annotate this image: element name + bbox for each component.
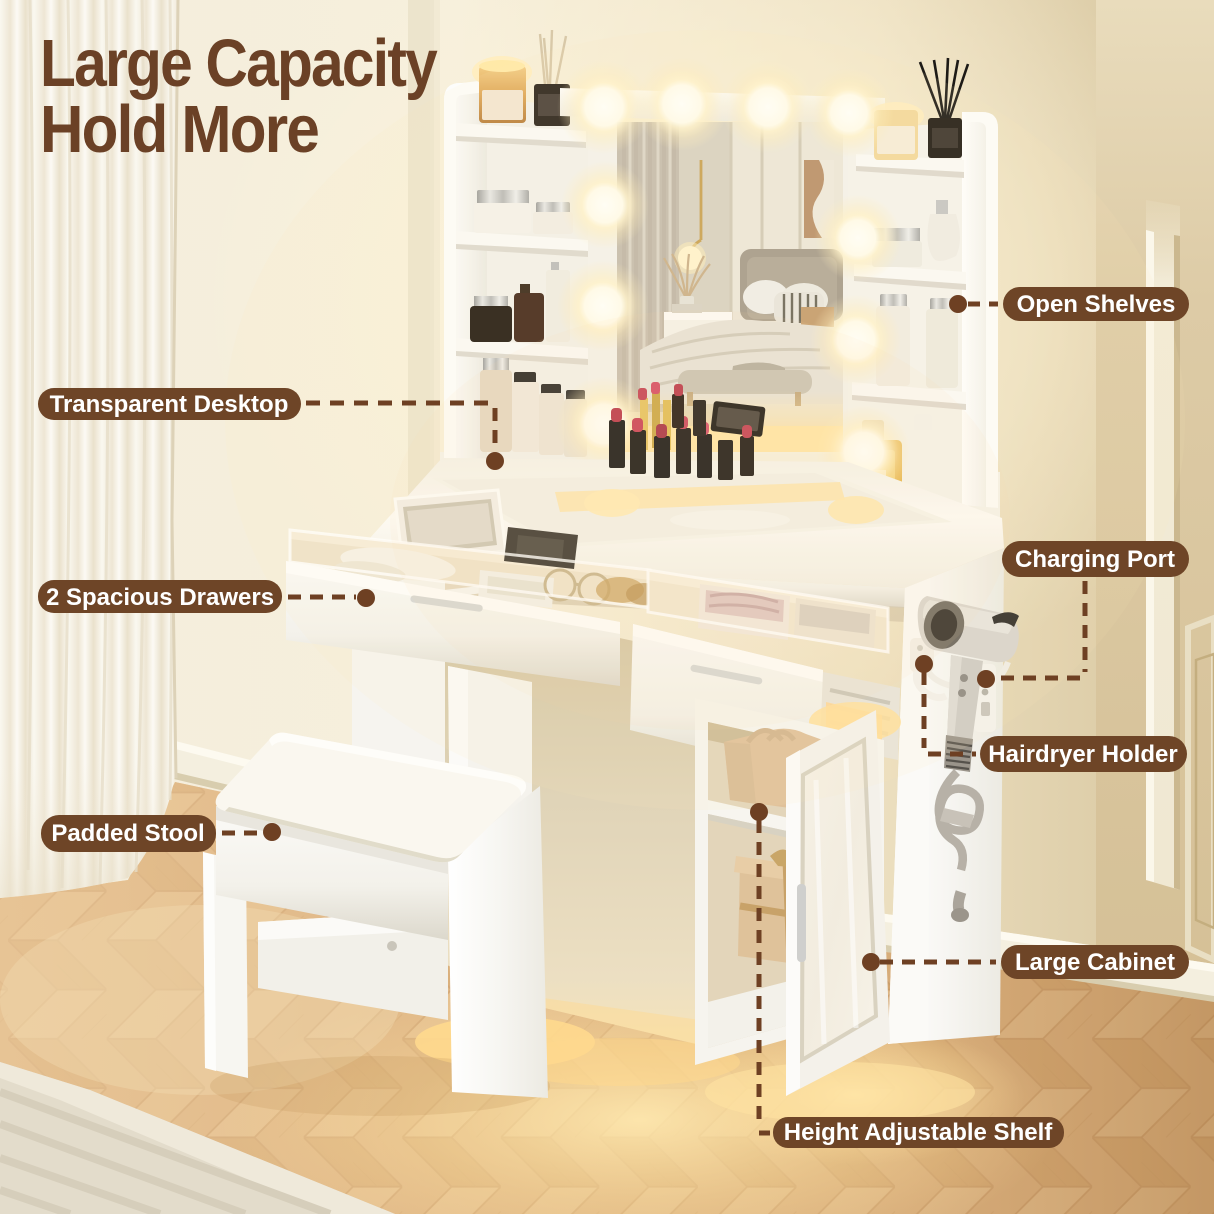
svg-text:Large Cabinet: Large Cabinet xyxy=(1015,949,1175,976)
svg-text:Height Adjustable Shelf: Height Adjustable Shelf xyxy=(784,1119,1053,1146)
svg-text:Large Capacity: Large Capacity xyxy=(40,26,438,101)
svg-text:Transparent Desktop: Transparent Desktop xyxy=(50,391,289,418)
svg-text:Open Shelves: Open Shelves xyxy=(1017,291,1176,318)
svg-text:2 Spacious Drawers: 2 Spacious Drawers xyxy=(46,584,274,611)
svg-text:Hold More: Hold More xyxy=(40,92,318,167)
svg-text:Padded Stool: Padded Stool xyxy=(51,820,204,847)
svg-text:Charging Port: Charging Port xyxy=(1015,546,1175,573)
svg-text:Hairdryer Holder: Hairdryer Holder xyxy=(988,741,1177,768)
